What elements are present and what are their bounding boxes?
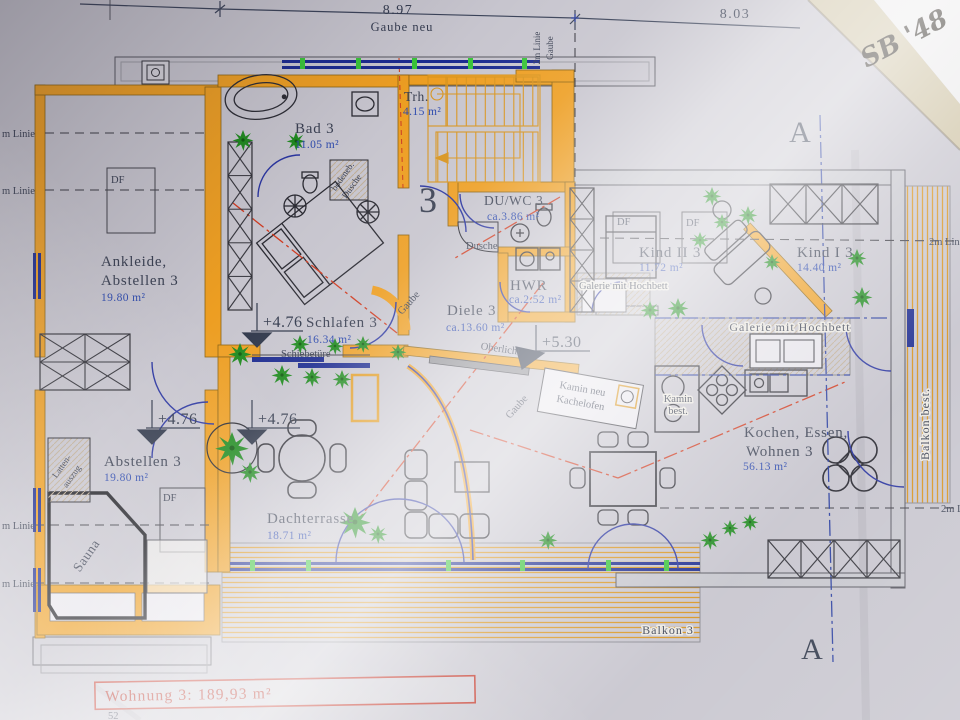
room-abstellen-name: Abstellen 3	[104, 454, 182, 470]
kamin-best-label1: Kamin	[664, 394, 693, 405]
sliding-door-leaf	[298, 363, 370, 368]
sauna-label: Sauna	[70, 536, 103, 574]
linie-left-3: m Linie	[2, 521, 35, 532]
df-label-3: DF	[617, 217, 631, 228]
dim-width-right: 8.03	[720, 7, 751, 22]
gaube-line-label2: Gaube	[545, 36, 555, 60]
room-diele-name: Diele 3	[447, 303, 496, 319]
dim-width-left: 8.97	[383, 3, 414, 18]
floorplan-photo: 8.97 Gaube neu 8.03 2m Linie Gaube A A A…	[0, 0, 960, 720]
room-dachterrasse-name: Dachterrasse	[267, 511, 354, 527]
staircase	[428, 75, 540, 182]
room-kind2-area: 11.72 m²	[639, 262, 683, 274]
room-ankleide-name1: Ankleide,	[101, 254, 167, 270]
schiebetuere-label: Schiebetüre	[281, 349, 331, 360]
galerie-label-small: Galerie mit Hochbett	[579, 281, 668, 292]
balkon3-deck	[222, 543, 700, 642]
room-kochen-area: 56.13 m²	[743, 461, 787, 473]
room-kind1-area: 14.40 m²	[797, 262, 841, 274]
terrace-door-frame	[352, 375, 378, 421]
summary-label: Wohnung 3: 189,93 m²	[105, 685, 272, 705]
room-schlafen-area: 16.34 m²	[307, 334, 351, 346]
linie-2m-bottom: 2m Linie	[941, 504, 960, 515]
room-dachterrasse-area: 18.71 m²	[267, 530, 311, 542]
room-abstellen-area: 19.80 m²	[104, 472, 148, 484]
balkon-best-label: Balkon best.	[918, 388, 932, 460]
folded-corner: SB '48	[808, 0, 960, 150]
room-ankleide-name2: Abstellen 3	[101, 273, 179, 289]
gaube-neu-label: Gaube neu	[371, 20, 434, 34]
apartment-number: 3	[419, 180, 437, 220]
terrace-table	[258, 420, 346, 498]
room-trh-name: Trh.	[404, 89, 429, 104]
dusche-label: Dusche	[466, 241, 498, 252]
floorplan-svg: 8.97 Gaube neu 8.03 2m Linie Gaube A A A…	[0, 0, 960, 720]
section-marker-bottom: A	[801, 633, 823, 666]
balkon3-label: Balkon 3	[642, 623, 694, 637]
level-530: +5.30	[542, 334, 582, 351]
gaube-label-2: Gaube	[504, 393, 531, 421]
sofa-group	[405, 450, 489, 538]
df-label-4: DF	[686, 218, 700, 229]
kamin-best-label2: best.	[668, 406, 688, 417]
section-marker-top: A	[789, 116, 811, 149]
partial-dimension: 52	[108, 711, 119, 720]
room-kind2-name: Kind II 3	[639, 245, 701, 261]
room-schlafen-name: Schlafen 3	[306, 315, 378, 331]
room-hwr-name: HWR	[510, 278, 547, 294]
gaube-line-label1: 2m Linie	[532, 32, 542, 65]
level-476-a: +4.76	[263, 314, 303, 331]
room-trh-area: 4.15 m²	[403, 106, 441, 118]
chimney-icon	[142, 61, 169, 84]
level-476-c: +4.76	[258, 411, 298, 428]
room-bad-area: 11.05 m²	[295, 139, 339, 151]
df-label-2: DF	[163, 493, 177, 504]
linie-2m-right: 2m Linie	[929, 237, 960, 248]
room-diele-area: ca.13.60 m²	[446, 322, 505, 334]
linie-left-4: m Linie	[2, 579, 35, 590]
room-duwc-name: DU/WC 3	[484, 193, 543, 208]
room-bad-name: Bad 3	[295, 121, 334, 137]
room-ankleide-area: 19.80 m²	[101, 292, 145, 304]
linie-left-2: m Linie	[2, 186, 35, 197]
room-kind1-name: Kind I 3	[797, 245, 853, 261]
level-476-b: +4.76	[158, 411, 198, 428]
summary-box: Wohnung 3: 189,93 m²	[95, 676, 475, 710]
dimension-line	[80, 1, 800, 30]
linie-left-1: m Linie	[2, 129, 35, 140]
room-kochen-name1: Kochen, Essen,	[744, 425, 848, 441]
room-duwc-area: ca.3.86 m²	[487, 211, 540, 223]
df-label-1: DF	[111, 175, 125, 186]
room-kochen-name2: Wohnen 3	[746, 444, 813, 460]
room-hwr-area: ca.2.52 m²	[509, 294, 562, 306]
galerie-label: Galerie mit Hochbett	[729, 320, 850, 334]
